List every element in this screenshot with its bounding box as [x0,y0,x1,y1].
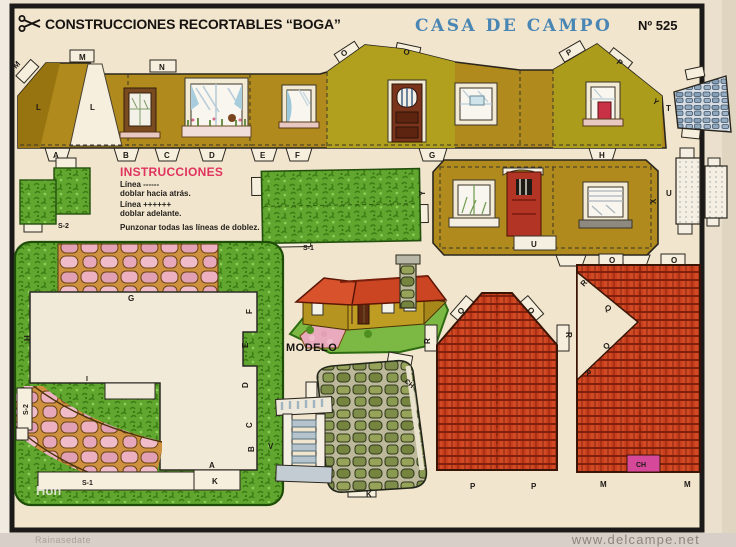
tab-letter-n: N [159,63,165,72]
wall-strip-rear: Y U X [418,160,658,266]
window-small [120,88,160,138]
sheet-title: CASA DE CAMPO [415,16,612,36]
tab-letter-d: D [209,151,215,160]
garden-base-piece: G H F E D C B A K I S-2 S-1 Hon [12,242,283,505]
punch-text: Punzonar todas las líneas de doblez. [120,223,260,232]
roofR-o2: O [671,256,677,265]
garden-letter-g: G [128,294,134,303]
garden-letter-k: K [212,477,218,486]
roofL-tab-r1: R [423,338,432,344]
garden-s1-strip [38,472,194,490]
tab-letter-g: G [429,151,435,160]
porch-step [105,383,155,399]
t-piece-letter: T [666,104,671,113]
garden-letter-c: C [245,422,254,428]
roofL-p2: P [531,482,537,491]
rear-letter-y: Y [418,190,427,196]
garden-s1-label: S-1 [82,480,93,487]
patio-stones [58,244,218,293]
scanned-cutout-sheet: CONSTRUCCIONES RECORTABLES “BOGA” CASA D… [0,0,736,547]
sheet-brand: CONSTRUCCIONES RECORTABLES “BOGA” [45,16,341,32]
fold-back-label: Línea ------ [120,180,159,189]
tab-letter-h: H [599,151,605,160]
roofR-m2: M [684,480,691,489]
fold-back-text: doblar hacia atrás. [120,189,191,198]
model-label: MODELO [286,342,337,354]
instructions-heading: INSTRUCCIONES [120,165,223,179]
sheet-number: Nº 525 [638,18,677,33]
sheet-canvas: CONSTRUCCIONES RECORTABLES “BOGA” CASA D… [0,0,736,547]
chimney-letter-l2: L [90,103,95,112]
rear-window-1 [449,180,499,227]
v-piece-letter: V [268,442,274,451]
rear-letter-u: U [531,240,537,249]
window-gable [583,82,623,126]
roofR-o1: O [609,256,615,265]
scan-watermark-left: Rainasedate [35,535,91,545]
rear-letter-x: X [649,198,658,204]
overlay-watermark: Hon [36,483,61,498]
tab-letter-m2: M [79,53,86,62]
s1-label: S-1 [303,245,314,252]
garden-letter-h: H [23,335,32,341]
window-curtain [279,85,319,128]
window-front [455,83,497,125]
roofL-tab-r2: R [564,332,573,338]
rear-window-2 [579,182,632,228]
s2-label: S-2 [58,223,69,230]
garden-letter-a: A [209,461,215,470]
garden-letter-b: B [247,446,256,452]
scan-watermark-right: www.delcampe.net [571,532,700,547]
chimney-wrap-k: K [366,490,372,499]
tab-letter-f: F [295,151,300,160]
tab-letter-b: B [123,151,129,160]
chimney-letter-l1: L [36,103,41,112]
roofR-ch-label: CH [636,462,646,469]
garden-letter-f: F [245,309,254,314]
garden-letter-e: E [241,342,250,348]
fold-front-text: doblar adelante. [120,209,181,218]
tab-letter-e: E [260,151,266,160]
tab-letter-c: C [164,151,170,160]
roofL-p1: P [470,482,476,491]
garden-s2-label: S-2 [23,404,30,415]
fold-front-label: Línea ++++++ [120,200,171,209]
roofR-m1: M [600,480,607,489]
roof-piece-right: O O R Q Q R M M CH [577,254,700,489]
u-piece-letter: U [666,189,672,198]
garden-letter-d: D [241,382,250,388]
garden-letter-i: I [86,376,88,383]
s1-hedge-piece [251,168,428,247]
door-front [388,80,426,142]
window-large [182,78,251,137]
scan-left-edge [0,0,10,533]
